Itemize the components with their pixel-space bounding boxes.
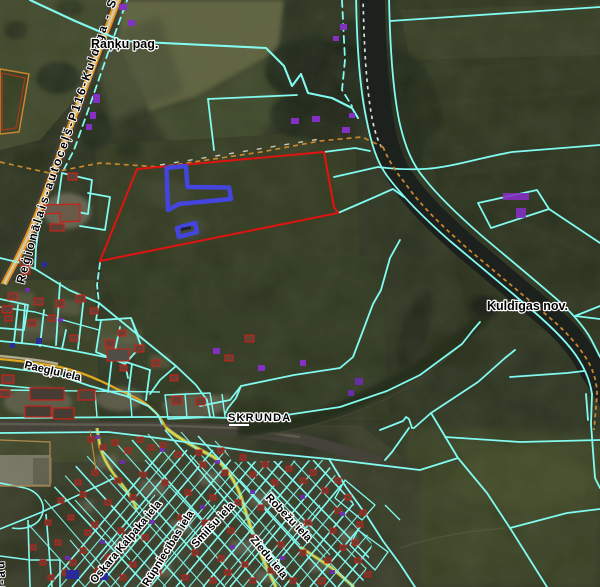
svg-text:SKRUNDA: SKRUNDA (228, 412, 291, 424)
svg-text:Kuldīgas nov.: Kuldīgas nov. (487, 299, 568, 313)
svg-text:Raņķu pag.: Raņķu pag. (91, 37, 158, 51)
